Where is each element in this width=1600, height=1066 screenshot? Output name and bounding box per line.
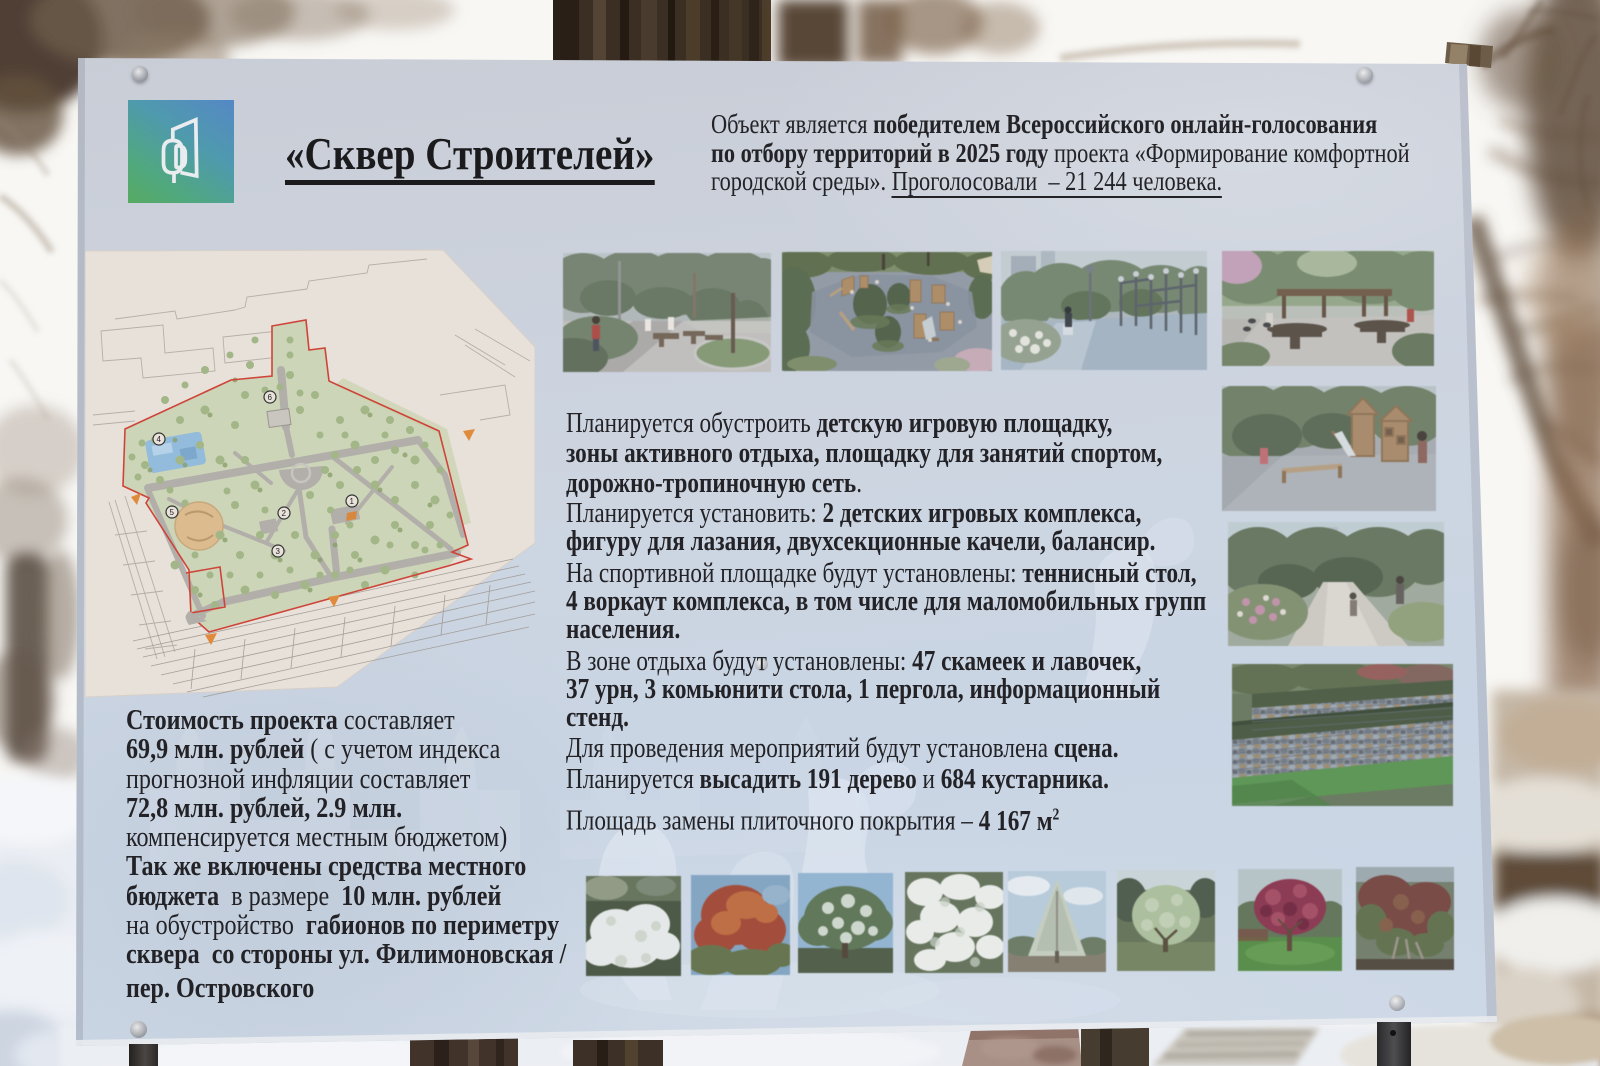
svg-text:6: 6 [268, 393, 273, 402]
svg-text:3: 3 [276, 547, 281, 556]
svg-text:1: 1 [350, 497, 355, 506]
svg-text:4: 4 [157, 435, 162, 444]
svg-text:5: 5 [170, 508, 175, 517]
svg-text:2: 2 [282, 509, 287, 518]
